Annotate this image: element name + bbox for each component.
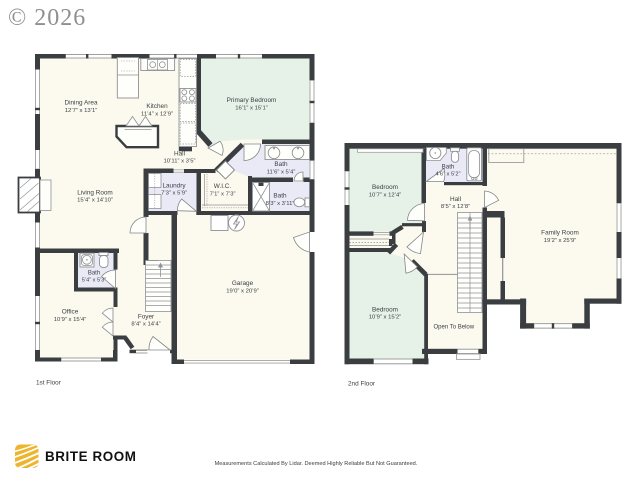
- svg-text:10’11” x 3’5”: 10’11” x 3’5”: [164, 159, 196, 165]
- svg-text:Hall: Hall: [450, 196, 461, 203]
- svg-text:10’7” x 12’4”: 10’7” x 12’4”: [369, 192, 401, 198]
- svg-text:19’0” x 20’9”: 19’0” x 20’9”: [226, 288, 258, 294]
- svg-text:BRITE ROOM: BRITE ROOM: [45, 449, 137, 464]
- svg-text:Bath: Bath: [442, 163, 455, 170]
- svg-text:2nd Floor: 2nd Floor: [348, 381, 376, 388]
- svg-text:Garage: Garage: [232, 280, 254, 287]
- svg-text:Open To Below: Open To Below: [434, 325, 475, 331]
- svg-text:15’4” x 14’10”: 15’4” x 14’10”: [77, 198, 113, 204]
- svg-text:19’2” x 25’9”: 19’2” x 25’9”: [544, 238, 576, 244]
- svg-text:Laundry: Laundry: [162, 182, 186, 189]
- svg-text:7’1” x 7’3”: 7’1” x 7’3”: [210, 191, 236, 197]
- svg-text:Foyer: Foyer: [138, 313, 155, 320]
- svg-text:16’1” x 15’1”: 16’1” x 15’1”: [235, 105, 267, 111]
- svg-text:10’9” x 15’2”: 10’9” x 15’2”: [369, 315, 401, 321]
- svg-text:Bath: Bath: [274, 161, 288, 168]
- svg-text:8’5” x 12’8”: 8’5” x 12’8”: [441, 204, 470, 210]
- svg-text:Measurements Calculated By Lid: Measurements Calculated By Lidar. Deemed…: [215, 461, 418, 467]
- svg-text:Bath: Bath: [88, 270, 100, 276]
- svg-text:Primary Bedroom: Primary Bedroom: [227, 97, 277, 104]
- svg-text:5’4” x 5’3”: 5’4” x 5’3”: [82, 278, 107, 284]
- svg-text:Kitchen: Kitchen: [146, 103, 168, 110]
- svg-text:8’4” x 14’4”: 8’4” x 14’4”: [131, 322, 160, 328]
- svg-text:8’3” x 3’11”: 8’3” x 3’11”: [266, 201, 295, 207]
- svg-text:4’6” x 5’2”: 4’6” x 5’2”: [436, 172, 461, 178]
- svg-text:Dining Area: Dining Area: [64, 100, 97, 107]
- svg-text:11’6” x 5’4”: 11’6” x 5’4”: [267, 169, 296, 175]
- svg-text:Bedroom: Bedroom: [372, 306, 398, 313]
- svg-text:Office: Office: [62, 309, 79, 316]
- svg-text:Bath: Bath: [273, 193, 287, 200]
- svg-text:11’4” x 12’9”: 11’4” x 12’9”: [141, 111, 173, 117]
- svg-text:10’9” x 15’4”: 10’9” x 15’4”: [54, 317, 86, 323]
- svg-text:Bedroom: Bedroom: [372, 184, 398, 191]
- svg-text:Living Room: Living Room: [77, 189, 113, 196]
- svg-text:W.I.C.: W.I.C.: [214, 183, 232, 190]
- svg-text:12’7” x 13’1”: 12’7” x 13’1”: [65, 108, 97, 114]
- svg-text:Hall: Hall: [174, 150, 185, 157]
- svg-text:© 2026: © 2026: [8, 5, 86, 31]
- svg-text:7’3” x 5’9”: 7’3” x 5’9”: [161, 191, 187, 197]
- svg-text:1st Floor: 1st Floor: [36, 380, 62, 387]
- svg-text:Family Room: Family Room: [541, 230, 579, 237]
